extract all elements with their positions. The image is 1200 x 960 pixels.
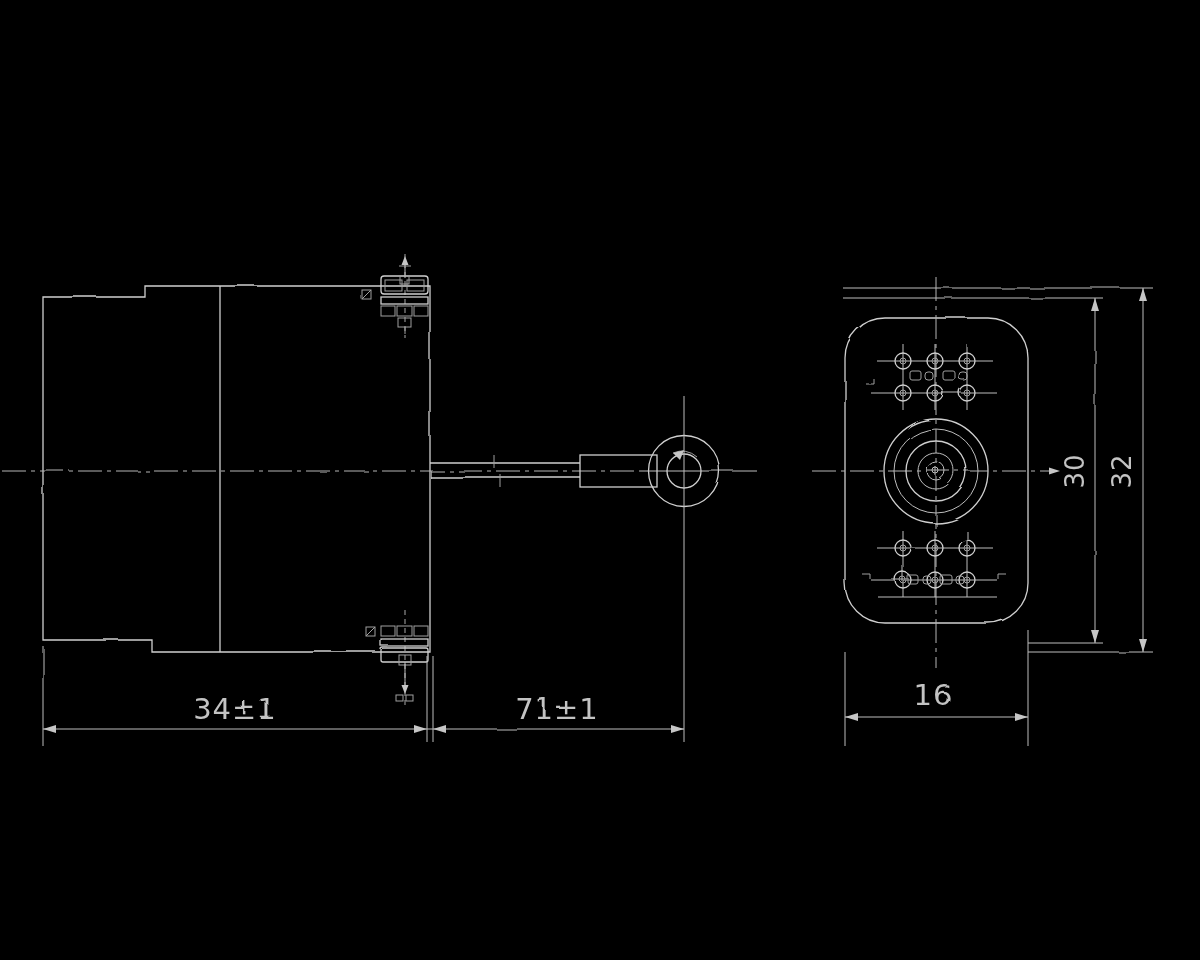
dim-shaft-length: 71±1	[515, 692, 599, 726]
dim-horizontal-left: 34±1 71±1	[43, 646, 684, 746]
front-view	[812, 277, 1060, 668]
dim-front-width: 16	[845, 630, 1028, 746]
dim-front-width-label: 16	[914, 678, 953, 712]
terminal-pins-top	[866, 344, 997, 410]
dim-front-height-inner: 30	[1060, 453, 1090, 488]
rotation-arrow-icon	[673, 450, 684, 460]
terminal-pins-bottom	[862, 531, 1006, 597]
dim-front-height-outer: 32	[1107, 453, 1137, 488]
dim-body-length: 34±1	[193, 692, 277, 726]
shaft-end-connector	[580, 396, 720, 742]
motor-body-outline	[43, 286, 430, 652]
top-terminal-detail	[362, 254, 428, 338]
drawing-svg: 34±1 71±1 16	[0, 0, 1200, 960]
dimension-annotations: 34±1 71±1 16	[43, 288, 1153, 746]
side-view	[2, 254, 757, 742]
engineering-drawing-canvas: 34±1 71±1 16	[0, 0, 1200, 960]
bottom-terminal-detail	[366, 610, 428, 706]
